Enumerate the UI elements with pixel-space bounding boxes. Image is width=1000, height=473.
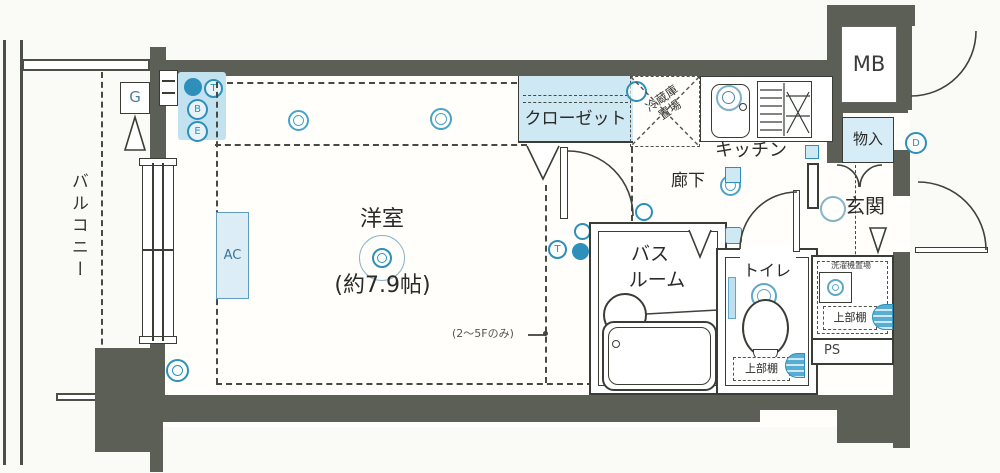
entrance-door-arc [918, 182, 986, 250]
bathroom-folding-door [689, 230, 711, 257]
shoe-cabinet-door-arc [837, 165, 859, 187]
fridge-cross-line [631, 77, 699, 146]
room-door-arc [568, 151, 633, 216]
bath-sink-counter-line [646, 310, 718, 314]
gas-meter-symbol [125, 117, 145, 150]
closet-folding-door [527, 146, 559, 179]
mb-door-arc [911, 31, 976, 96]
toilet-door-arc [740, 192, 797, 249]
stove-grid [760, 83, 810, 136]
shoe-cabinet-door-arc [860, 165, 882, 187]
entrance-step-marker [870, 228, 886, 252]
floor-plan: MB 物入 D バルコニー G T B E 洋室 (約7.9帖) (2〜5Fのみ… [0, 0, 1000, 473]
line-art-overlay [0, 0, 1000, 473]
